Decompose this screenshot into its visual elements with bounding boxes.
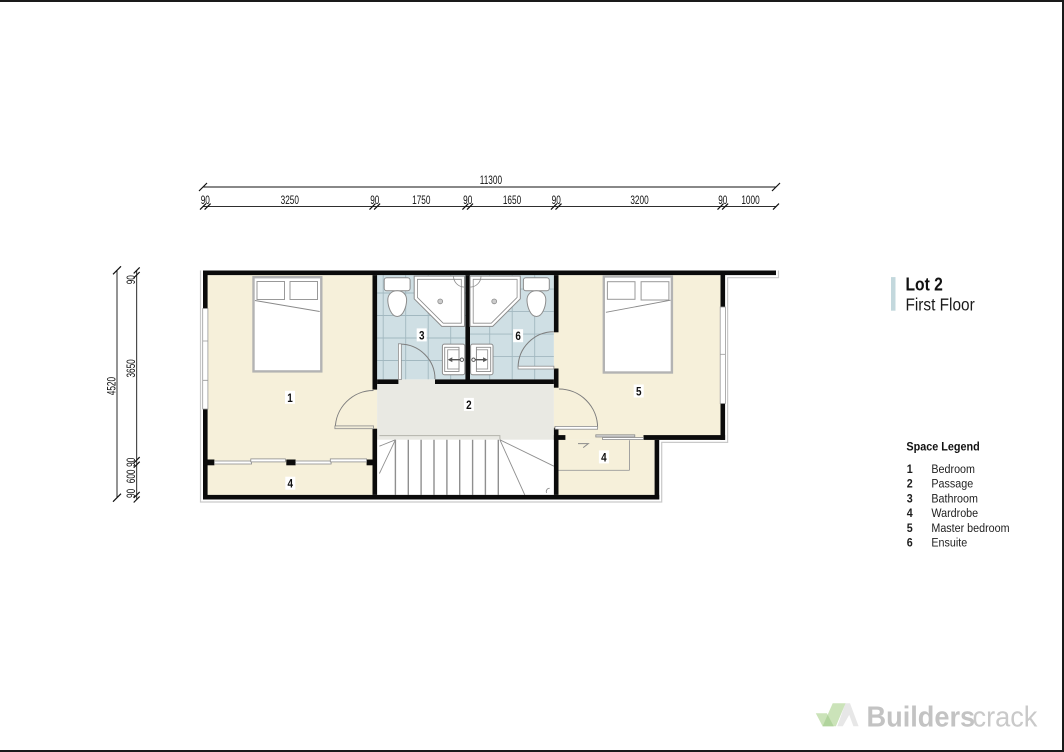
svg-text:Wardrobe: Wardrobe <box>931 508 978 521</box>
svg-text:5: 5 <box>907 522 914 535</box>
svg-text:Passage: Passage <box>931 478 973 491</box>
svg-text:1000: 1000 <box>741 195 760 208</box>
svg-text:Ensuite: Ensuite <box>931 537 967 550</box>
svg-text:6: 6 <box>907 537 913 550</box>
svg-text:Lot 2: Lot 2 <box>906 274 943 294</box>
svg-text:6: 6 <box>515 330 521 343</box>
svg-text:Bathroom: Bathroom <box>931 493 978 506</box>
svg-text:90: 90 <box>370 195 379 208</box>
svg-text:3650: 3650 <box>126 359 139 378</box>
svg-text:90: 90 <box>201 195 210 208</box>
svg-text:2: 2 <box>466 399 472 412</box>
svg-text:1750: 1750 <box>412 195 431 208</box>
svg-text:4: 4 <box>288 478 294 491</box>
svg-text:Bedroom: Bedroom <box>931 463 975 476</box>
svg-text:3: 3 <box>419 329 425 342</box>
svg-text:4520: 4520 <box>106 377 119 396</box>
svg-text:3200: 3200 <box>630 195 649 208</box>
svg-text:90: 90 <box>463 195 472 208</box>
svg-text:Builders: Builders <box>867 701 976 733</box>
svg-text:Master bedroom: Master bedroom <box>931 522 1009 535</box>
svg-text:90: 90 <box>126 457 139 466</box>
svg-text:1: 1 <box>287 392 293 405</box>
svg-text:5: 5 <box>636 386 642 399</box>
svg-text:3250: 3250 <box>281 195 300 208</box>
svg-text:4: 4 <box>907 508 914 521</box>
svg-text:90: 90 <box>126 488 139 497</box>
svg-text:First Floor: First Floor <box>906 296 976 315</box>
svg-text:2: 2 <box>907 478 913 491</box>
svg-text:1: 1 <box>907 463 914 476</box>
svg-text:Space Legend: Space Legend <box>906 441 979 454</box>
svg-text:3: 3 <box>907 493 913 506</box>
svg-text:1650: 1650 <box>503 195 522 208</box>
svg-text:90: 90 <box>552 195 561 208</box>
svg-text:11300: 11300 <box>480 175 503 188</box>
svg-text:90: 90 <box>126 275 139 284</box>
svg-text:600: 600 <box>126 469 139 483</box>
svg-text:crack: crack <box>973 701 1038 733</box>
svg-text:4: 4 <box>601 451 607 464</box>
svg-text:90: 90 <box>718 195 727 208</box>
